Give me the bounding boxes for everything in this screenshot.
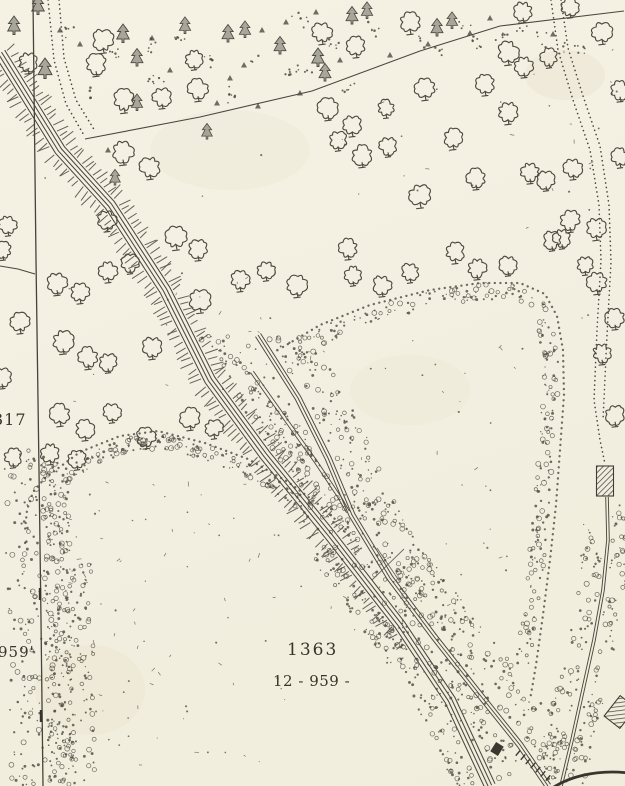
parcel-number-1363-label: 1363 bbox=[287, 642, 338, 659]
acreage-959-label: 959' bbox=[0, 645, 35, 660]
map-canvas: 317 959' 1363 12 - 959 - bbox=[0, 0, 625, 786]
acreage-12-959-label: 12 - 959 - bbox=[273, 674, 350, 689]
parcel-number-317-label: 317 bbox=[0, 412, 27, 428]
map-illustration bbox=[0, 0, 625, 786]
